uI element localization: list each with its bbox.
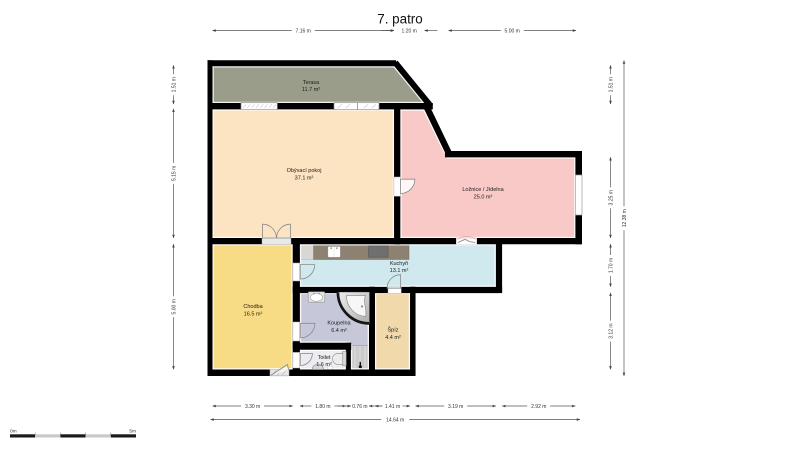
- svg-text:Obývací pokoj: Obývací pokoj: [287, 168, 322, 174]
- svg-text:1.51 m: 1.51 m: [172, 77, 178, 92]
- svg-text:1.80 m: 1.80 m: [315, 404, 330, 410]
- svg-text:4.4 m²: 4.4 m²: [385, 335, 401, 341]
- svg-text:Chodba: Chodba: [243, 304, 263, 310]
- svg-text:3.25 m: 3.25 m: [609, 190, 615, 205]
- svg-text:7. patro: 7. patro: [377, 12, 422, 27]
- svg-text:3.19 m: 3.19 m: [448, 404, 463, 410]
- svg-text:3.12 m: 3.12 m: [609, 323, 615, 338]
- svg-text:12.38 m: 12.38 m: [622, 209, 628, 227]
- svg-text:5m: 5m: [129, 429, 136, 435]
- svg-text:3.30 m: 3.30 m: [245, 404, 260, 410]
- svg-text:Kuchyň: Kuchyň: [390, 261, 408, 267]
- svg-text:5.00 m: 5.00 m: [172, 299, 178, 314]
- svg-text:Toilet: Toilet: [318, 355, 331, 361]
- svg-text:1.41 m: 1.41 m: [385, 404, 400, 410]
- svg-text:1.51 m: 1.51 m: [609, 77, 615, 92]
- svg-text:Špíz: Špíz: [387, 327, 398, 334]
- svg-text:5.00 m: 5.00 m: [505, 29, 520, 35]
- svg-text:16.5 m²: 16.5 m²: [244, 311, 263, 317]
- svg-text:11.7 m²: 11.7 m²: [302, 87, 320, 93]
- svg-text:Ložnice / Jídelna: Ložnice / Jídelna: [462, 187, 504, 193]
- svg-text:6.4 m²: 6.4 m²: [331, 328, 347, 334]
- svg-text:1.20 m: 1.20 m: [402, 29, 417, 35]
- svg-text:Koupelna: Koupelna: [327, 321, 351, 327]
- svg-text:0.76 m: 0.76 m: [352, 404, 367, 410]
- svg-text:Terasa: Terasa: [303, 80, 320, 86]
- svg-text:7.16 m: 7.16 m: [296, 29, 311, 35]
- svg-text:13.1 m²: 13.1 m²: [390, 268, 409, 274]
- svg-text:1.70 m: 1.70 m: [609, 258, 615, 273]
- svg-text:2.92 m: 2.92 m: [531, 404, 546, 410]
- svg-text:14.64 m: 14.64 m: [386, 418, 404, 424]
- svg-text:1.6 m²: 1.6 m²: [316, 362, 332, 368]
- svg-text:25.0 m²: 25.0 m²: [474, 194, 493, 200]
- svg-text:37.1 m²: 37.1 m²: [295, 175, 314, 181]
- svg-text:5.15 m: 5.15 m: [172, 166, 178, 181]
- svg-text:0m: 0m: [10, 429, 17, 435]
